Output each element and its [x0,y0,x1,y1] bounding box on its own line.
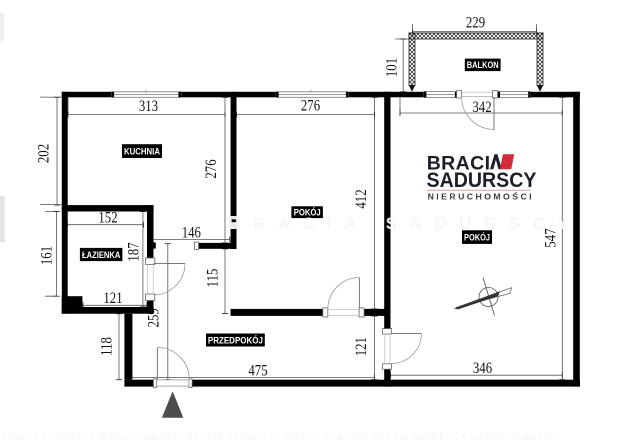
svg-text:N I E R U C H O M O Ś C I: N I E R U C H O M O Ś C I [428,193,532,202]
svg-text:152: 152 [98,209,117,227]
svg-text:313: 313 [139,98,158,116]
svg-text:115: 115 [204,269,222,288]
svg-text:118: 118 [98,337,116,356]
svg-text:121: 121 [103,290,122,308]
svg-text:146: 146 [182,224,201,242]
svg-text:475: 475 [248,362,267,380]
svg-text:BALKON: BALKON [467,60,499,71]
svg-text:BRACIA SADURSCY: BRACIA SADURSCY [228,214,581,233]
svg-text:BRACIA SADURSCY NIERUCHOMOŚCI: BRACIA SADURSCY NIERUCHOMOŚCI BRACIA SAD… [2,433,554,442]
svg-text:121: 121 [353,337,371,356]
svg-text:ŁAZIENKA: ŁAZIENKA [82,250,121,261]
svg-text:346: 346 [473,360,492,378]
svg-text:202: 202 [35,144,53,163]
svg-text:276: 276 [301,97,320,115]
svg-text:161: 161 [38,246,56,265]
svg-text:276: 276 [203,159,221,178]
svg-text:101: 101 [383,58,401,77]
svg-text:POKÓJ: POKÓJ [464,232,490,244]
svg-text:PRZEDPOKÓJ: PRZEDPOKÓJ [208,334,263,346]
svg-text:187: 187 [125,242,143,261]
svg-text:342: 342 [472,99,491,117]
svg-text:412: 412 [353,189,371,208]
svg-text:KUCHNIA: KUCHNIA [124,146,160,157]
svg-text:SADURSCY: SADURSCY [427,169,537,192]
svg-text:229: 229 [466,14,485,32]
